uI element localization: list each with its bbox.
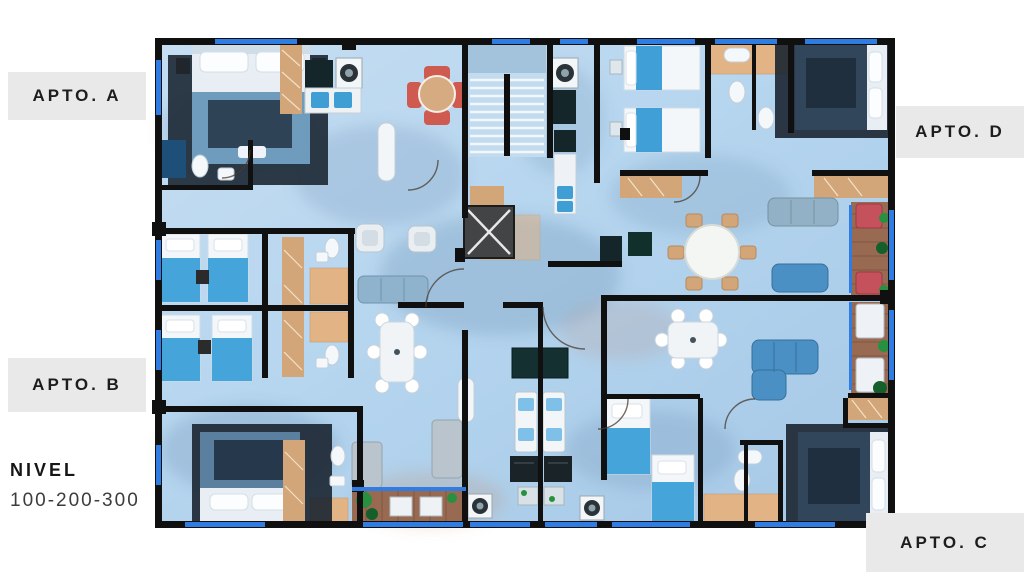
- plant-icon: [447, 493, 457, 503]
- sofa: [358, 276, 428, 303]
- toilet-icon: [331, 446, 345, 466]
- label-apartment-c: APTO. C: [866, 513, 1024, 572]
- loveseat: [772, 264, 828, 292]
- master-bedroom: [192, 424, 332, 524]
- level-value: 100-200-300: [10, 490, 140, 512]
- page: APTO. A APTO. B APTO. D APTO. C NIVEL 10…: [0, 0, 1024, 572]
- closet-master: [283, 440, 305, 524]
- shelf: [544, 487, 564, 505]
- closet: [845, 398, 888, 420]
- level-title: NIVEL: [10, 460, 140, 481]
- plant-icon: [366, 508, 378, 520]
- terrace-chair: [420, 497, 442, 516]
- toilet-icon: [758, 107, 774, 129]
- label-apartment-d-text: APTO. D: [915, 122, 1005, 142]
- label-apartment-b: APTO. B: [8, 358, 146, 412]
- floor-plan-rendering: [0, 0, 1024, 572]
- plant-icon: [879, 213, 889, 223]
- balcony-chair: [856, 204, 882, 228]
- sofa: [768, 198, 838, 226]
- open-door-leaf: [378, 123, 395, 181]
- appliance: [628, 232, 652, 256]
- label-apartment-a-text: APTO. A: [32, 86, 121, 106]
- toilet-icon: [192, 155, 208, 177]
- lounger: [432, 420, 462, 478]
- label-apartment-c-text: APTO. C: [900, 533, 990, 553]
- level-panel: NIVEL 100-200-300: [10, 460, 140, 512]
- dresser: [544, 456, 572, 482]
- terrace-chair: [390, 497, 412, 516]
- master-bedroom: [786, 424, 890, 524]
- dresser: [510, 456, 538, 482]
- label-apartment-a: APTO. A: [8, 72, 146, 120]
- sink-icon: [724, 48, 750, 62]
- plant-icon: [876, 242, 888, 254]
- core-kitchen: [552, 58, 578, 214]
- lounger: [856, 304, 884, 338]
- shelf: [518, 487, 538, 505]
- closet: [280, 42, 302, 114]
- kitchen-counter: [552, 90, 576, 124]
- label-apartment-b-text: APTO. B: [32, 375, 122, 395]
- plant-icon: [873, 381, 887, 395]
- stair-rail: [504, 74, 510, 156]
- toilet-icon: [729, 81, 745, 103]
- sink-icon: [557, 186, 573, 199]
- stairwell: [468, 45, 546, 157]
- shower: [158, 140, 186, 178]
- elevator-landing: [470, 186, 504, 206]
- label-apartment-d: APTO. D: [896, 106, 1024, 158]
- balcony-chair: [856, 272, 882, 294]
- sink-icon: [738, 450, 762, 464]
